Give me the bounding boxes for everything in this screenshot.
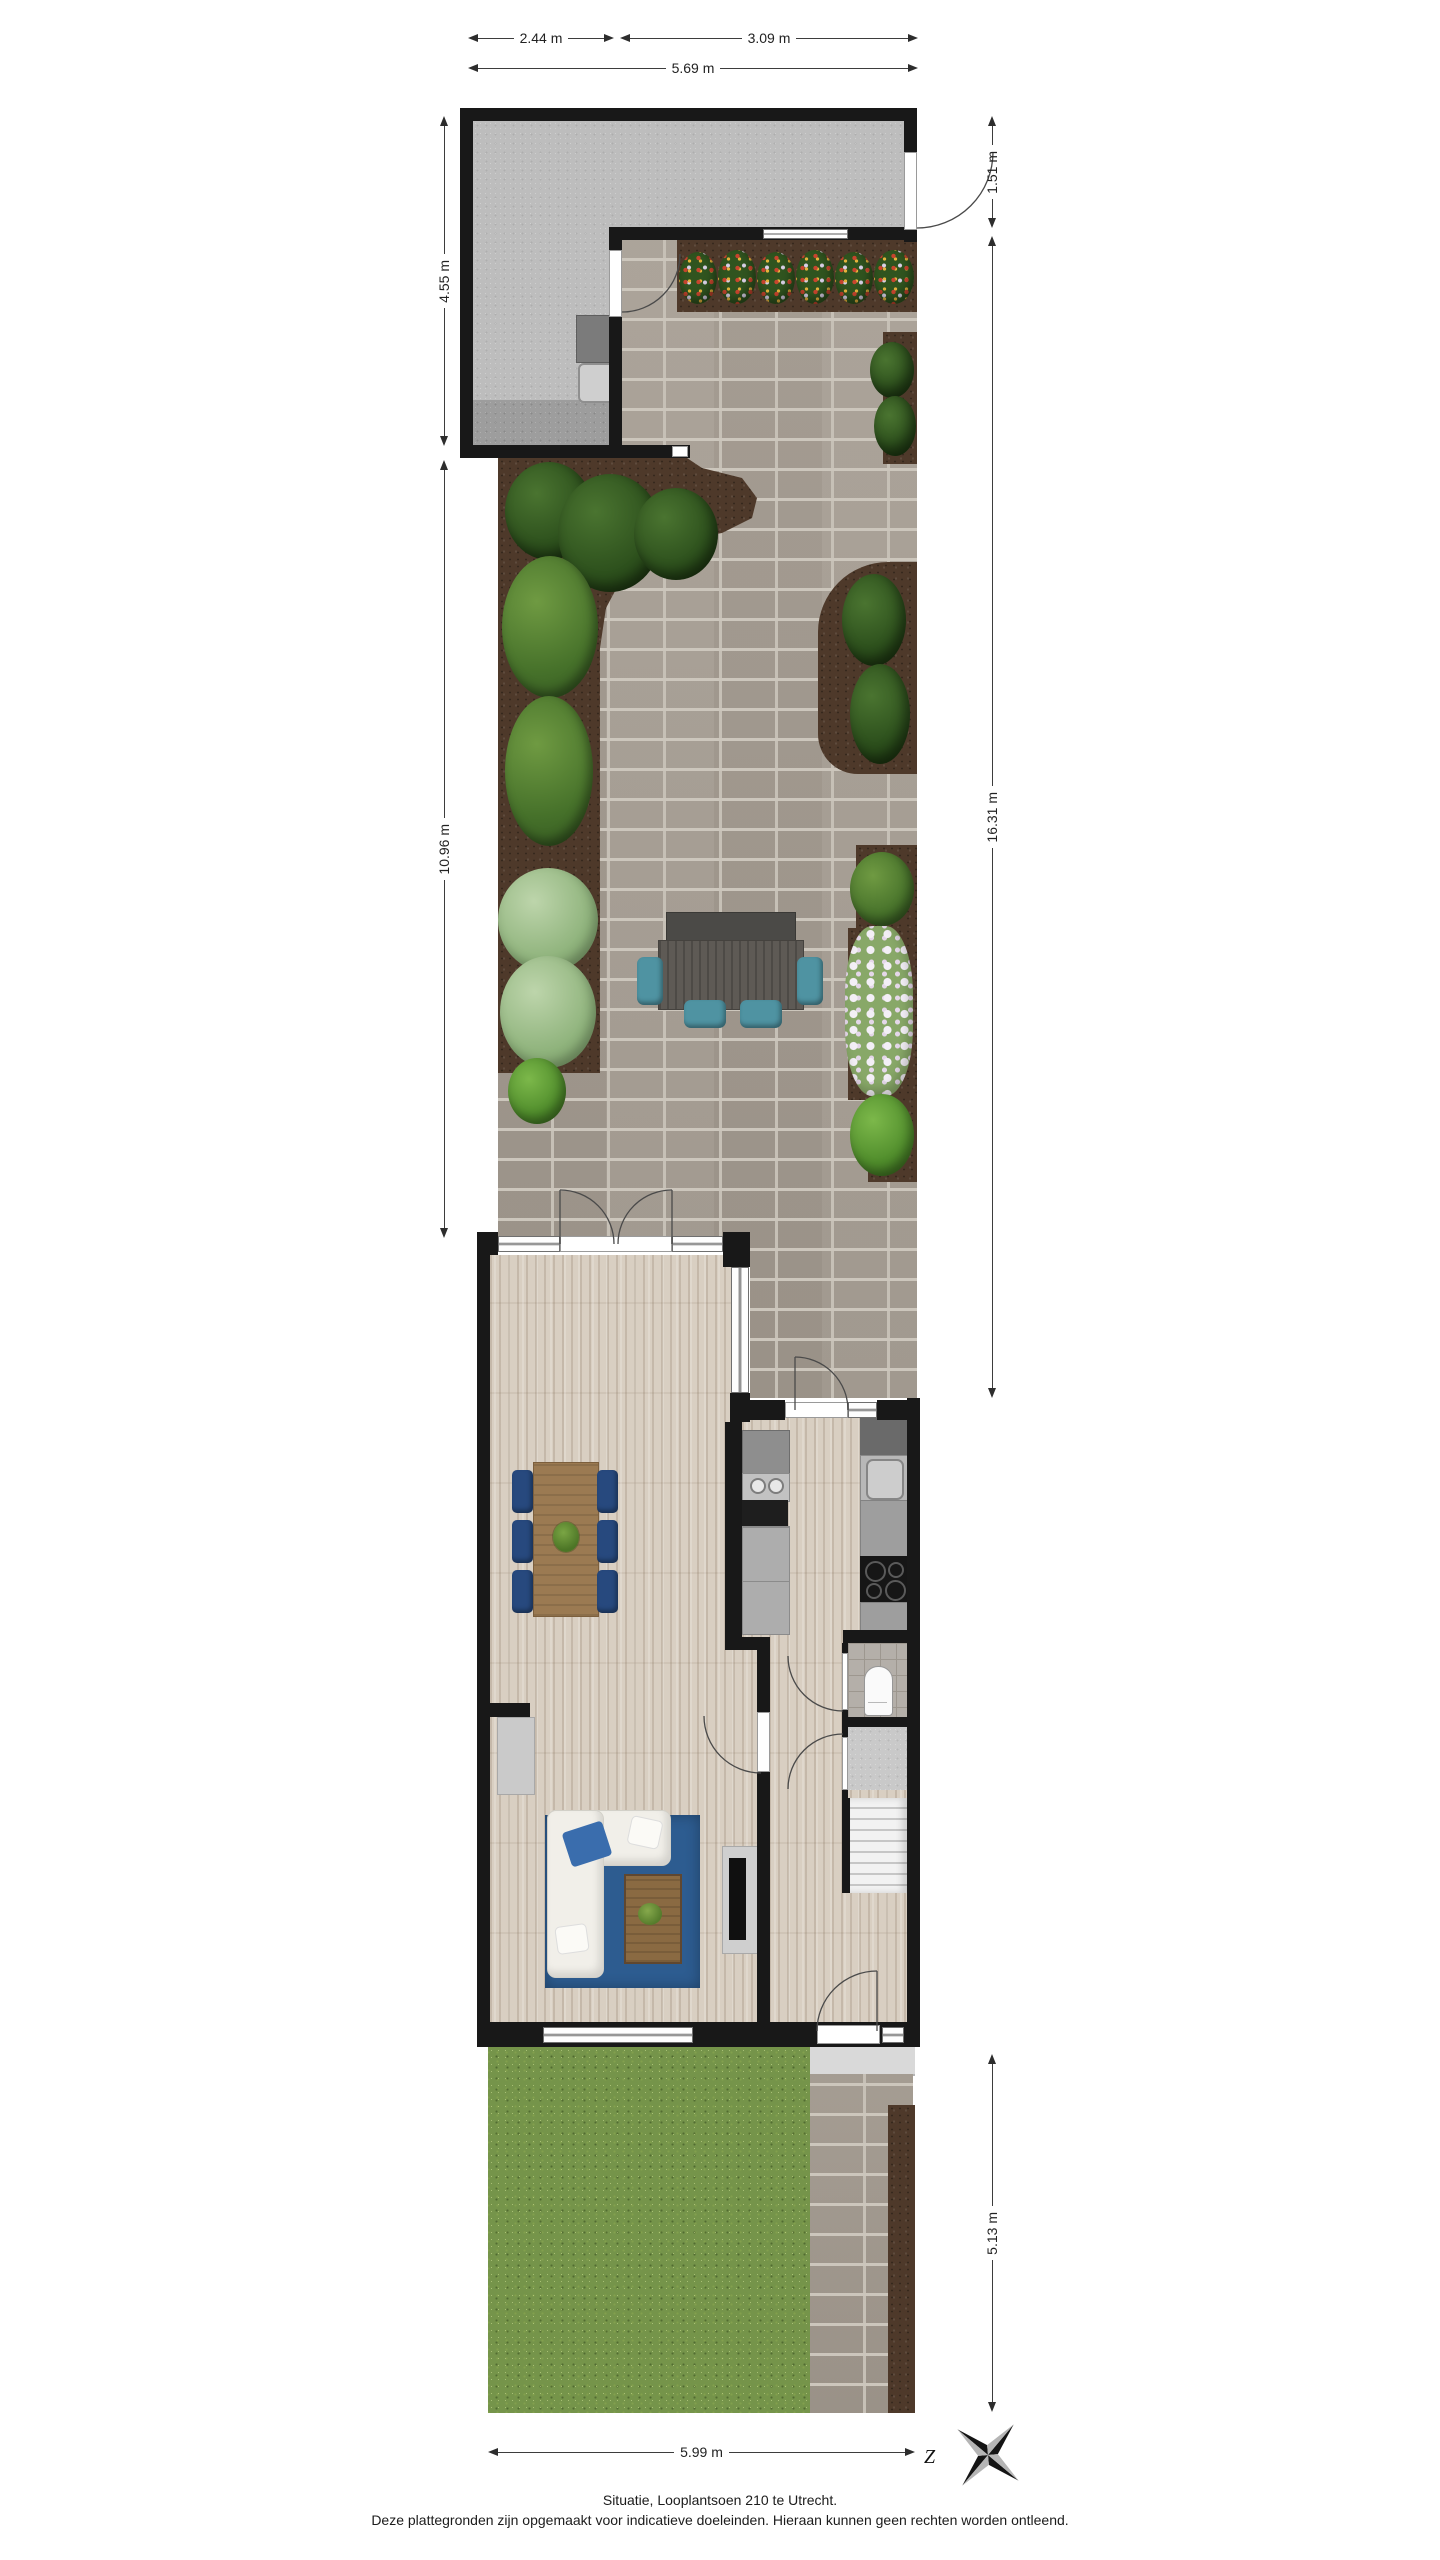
dimension-label: 3.09 m [742, 31, 797, 45]
dimension-label: 5.99 m [674, 2445, 729, 2459]
plan-overlay [0, 0, 1440, 2560]
door-swing-arcs [560, 152, 993, 2031]
caption-disclaimer: Deze plattegronden zijn opgemaakt voor i… [0, 2512, 1440, 2528]
dimension-label: 4.55 m [437, 254, 451, 309]
dimension-right-shed: 1.51 m [983, 116, 1001, 228]
dimension-right-garden: 16.31 m [983, 236, 1001, 1398]
dimension-top-total: 5.69 m [468, 60, 918, 76]
dimension-left-shed: 4.55 m [435, 116, 453, 446]
dimension-label: 10.96 m [437, 818, 451, 881]
dimension-label: 5.13 m [985, 2206, 999, 2261]
compass-south-label: Z [924, 2446, 935, 2469]
dimension-left-garden: 10.96 m [435, 460, 453, 1238]
dimension-right-front: 5.13 m [983, 2054, 1001, 2412]
dimension-label: 16.31 m [985, 786, 999, 849]
dimension-top-right: 3.09 m [620, 30, 918, 46]
dimension-bottom: 5.99 m [488, 2444, 915, 2460]
dimension-label: 5.69 m [666, 61, 721, 75]
dimension-label: 1.51 m [985, 145, 999, 200]
caption-title: Situatie, Looplantsoen 210 te Utrecht. [0, 2492, 1440, 2508]
dimension-top-left: 2.44 m [468, 30, 614, 46]
floorplan-canvas: Z 2.44 m 3.09 m 5.69 m 4.55 m 10.96 m 1.… [0, 0, 1440, 2560]
dimension-label: 2.44 m [514, 31, 569, 45]
